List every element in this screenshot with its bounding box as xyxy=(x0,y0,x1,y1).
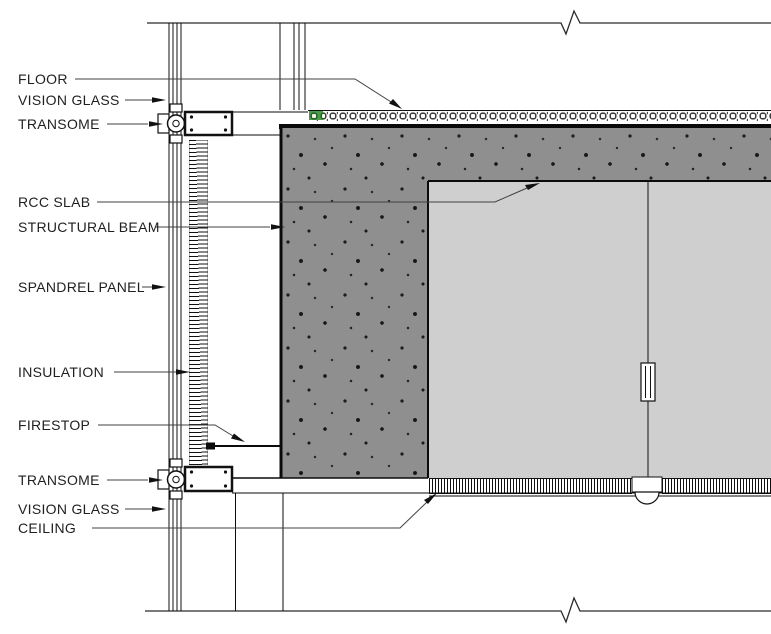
break-line-top xyxy=(147,11,771,34)
drawing-canvas: FLOOR VISION GLASS TRANSOME RCC SLAB STR… xyxy=(0,0,771,634)
insulation-coil xyxy=(189,140,208,465)
label-floor: FLOOR xyxy=(18,71,68,87)
ceiling-hanger-clip xyxy=(635,492,659,504)
vision-glass-pane-lines xyxy=(169,23,181,611)
floor-finish-screed xyxy=(308,110,771,121)
label-ceiling: CEILING xyxy=(18,520,76,536)
ceiling-insulation-hatch-right xyxy=(662,478,771,494)
break-line-bottom xyxy=(145,598,771,622)
label-firestop: FIRESTOP xyxy=(18,417,90,433)
label-transome-bottom: TRANSOME xyxy=(18,472,100,488)
ceiling-insulation-hatch-left xyxy=(429,478,632,494)
structural-beam-hatch xyxy=(282,181,428,478)
transome-bottom-assembly xyxy=(158,459,232,499)
label-transome-top: TRANSOME xyxy=(18,116,100,132)
transome-top-assembly xyxy=(158,104,232,143)
label-spandrel-panel: SPANDREL PANEL xyxy=(18,279,145,295)
interior-plenum-space xyxy=(429,182,771,478)
label-insulation: INSULATION xyxy=(18,364,104,380)
upper-partition-lines xyxy=(280,23,305,110)
rcc-slab-hatch xyxy=(282,128,771,181)
firestop-strip xyxy=(206,443,280,450)
label-structural-beam: STRUCTURAL BEAM xyxy=(18,219,160,235)
label-rcc-slab: RCC SLAB xyxy=(18,194,90,210)
floor-finish-accent xyxy=(309,111,323,120)
label-vision-glass-top: VISION GLASS xyxy=(18,92,120,108)
label-vision-glass-bottom: VISION GLASS xyxy=(18,501,120,517)
